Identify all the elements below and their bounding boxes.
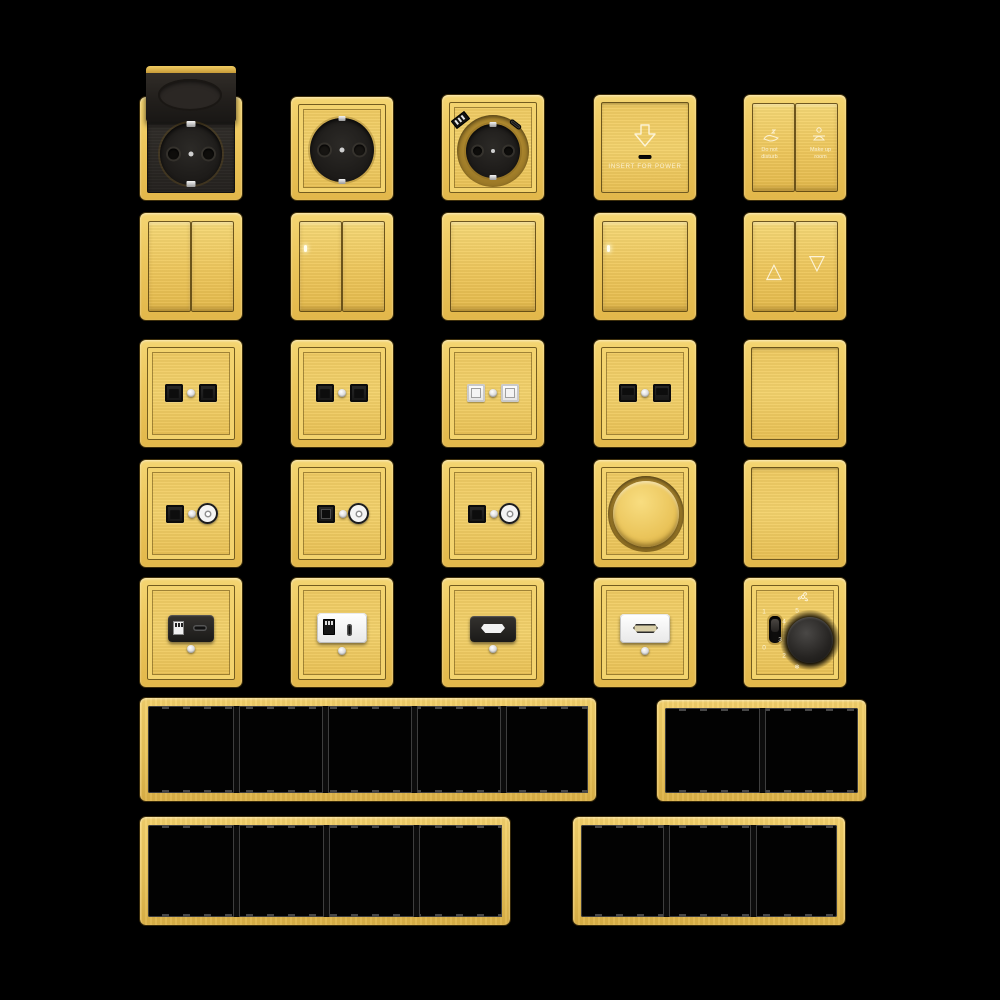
tile-blank-plate[interactable] (744, 340, 846, 447)
frame-openings (581, 825, 837, 917)
keystone-port-right[interactable] (501, 384, 519, 402)
keystone-port-right[interactable] (350, 384, 368, 402)
tile-usb-data-socket[interactable] (594, 340, 696, 447)
center-screw (187, 389, 195, 397)
tile-tv-socket-2[interactable] (291, 460, 393, 567)
tile-socket-flip-cover[interactable] (140, 97, 242, 200)
coax-connector[interactable] (499, 503, 520, 524)
pin-hole-left (473, 147, 482, 156)
frame-divider (759, 708, 766, 793)
dial-number-5: 5 (795, 608, 799, 615)
toggle-label-on: 1 (762, 609, 766, 616)
lid-gold-edge (146, 66, 236, 73)
down-triangle-icon: ▽ (809, 253, 825, 274)
keystone-port-right[interactable] (199, 384, 217, 402)
tile-rotary-dimmer[interactable] (594, 460, 696, 567)
rocker-left[interactable] (299, 221, 342, 312)
product-collage: INSERT FOR POWER Do not disturb Make up … (0, 0, 1000, 1000)
usb-c-port-icon[interactable] (347, 624, 352, 636)
coax-connector[interactable] (197, 503, 218, 524)
mur-label-line2: room (814, 154, 827, 160)
blank-cover (751, 467, 839, 560)
keycard-label: INSERT FOR POWER (594, 164, 696, 170)
center-screw (490, 510, 498, 518)
schuko-socket[interactable] (160, 123, 222, 185)
earth-clip-bottom (490, 175, 497, 180)
tile-switch-1gang[interactable] (442, 213, 544, 320)
tile-hdmi-white[interactable] (594, 578, 696, 687)
up-triangle-icon: △ (766, 261, 782, 282)
pin-hole-left (168, 149, 179, 160)
module-screw (641, 647, 649, 655)
rocker[interactable] (450, 221, 536, 312)
frame-divider (233, 706, 240, 793)
hdmi-port-icon[interactable] (633, 624, 658, 633)
tile-tv-socket-3[interactable] (442, 460, 544, 567)
fan-speed-knob[interactable] (787, 617, 833, 663)
dial-number-4: 4 (782, 619, 786, 626)
tile-switch-1gang-led[interactable] (594, 213, 696, 320)
tile-switch-2gang-led[interactable] (291, 213, 393, 320)
center-screw (339, 510, 347, 518)
earth-clip-bottom (187, 181, 196, 187)
center-screw (340, 148, 345, 153)
blank-cover (751, 347, 839, 440)
usb-c-port-icon[interactable] (193, 625, 207, 631)
data-port[interactable] (166, 505, 184, 523)
make-up-room-icon (811, 127, 827, 142)
optical-port[interactable] (317, 505, 335, 523)
mur-label-line1: Make up (810, 147, 831, 153)
keystone-port-left[interactable] (316, 384, 334, 402)
usb-a-port-icon[interactable] (323, 619, 335, 635)
tile-socket-usb[interactable] (442, 95, 544, 200)
center-screw (188, 510, 196, 518)
pin-hole-right (203, 149, 214, 160)
frame-divider (411, 706, 418, 793)
frame-divider (750, 825, 757, 917)
frame-3gang[interactable] (573, 817, 845, 925)
toggle-paddle (771, 619, 779, 632)
tile-usb-charger-white[interactable] (291, 578, 393, 687)
center-screw (489, 389, 497, 397)
module-screw (187, 645, 195, 653)
usb-port-left[interactable] (619, 384, 637, 402)
frame-divider (323, 825, 330, 917)
hdmi-module (470, 616, 516, 642)
center-screw (338, 389, 346, 397)
pin-hole-left (319, 145, 330, 156)
frame-divider (322, 706, 329, 793)
tile-socket-schuko[interactable] (291, 97, 393, 200)
lid-recess (158, 79, 222, 111)
rocker-right[interactable] (191, 221, 234, 312)
keystone-port-left[interactable] (165, 384, 183, 402)
dnd-label-line2: disturb (761, 154, 778, 160)
led-indicator (304, 245, 307, 252)
rocker-left[interactable] (148, 221, 191, 312)
hdmi-port-icon[interactable] (481, 624, 505, 633)
card-arrow-icon (631, 123, 659, 149)
fan-icon (796, 590, 810, 604)
earth-clip-bottom (339, 179, 346, 184)
module-screw (489, 645, 497, 653)
tile-hdmi-black[interactable] (442, 578, 544, 687)
tile-fan-controller[interactable]: 1 0 5 4 3 2 ❄ (744, 578, 846, 687)
module-screw (338, 647, 346, 655)
keystone-port-left[interactable] (467, 384, 485, 402)
frame-4gang[interactable] (140, 817, 510, 925)
frame-2gang[interactable] (657, 700, 866, 801)
schuko-socket[interactable] (310, 118, 374, 182)
tile-data-socket-white[interactable] (442, 340, 544, 447)
coax-connector[interactable] (348, 503, 369, 524)
tile-tv-socket[interactable] (140, 460, 242, 567)
frame-openings (148, 706, 588, 793)
earth-clip-top (490, 122, 497, 127)
rocker[interactable] (602, 221, 688, 312)
snowflake-icon: ❄ (794, 663, 799, 671)
do-not-disturb-icon (762, 129, 780, 142)
center-screw (189, 152, 194, 157)
led-indicator (607, 245, 610, 252)
tile-data-socket-black-2[interactable] (291, 340, 393, 447)
center-screw (491, 149, 495, 153)
pin-hole-right (354, 145, 365, 156)
tile-data-socket-black[interactable] (140, 340, 242, 447)
tile-curtain-switch[interactable]: △ ▽ (744, 213, 846, 320)
usb-charger-module (168, 615, 214, 642)
frame-5gang[interactable] (140, 698, 596, 801)
earth-clip-top (339, 116, 346, 121)
frame-divider (413, 825, 420, 917)
data-port[interactable] (468, 505, 486, 523)
pin-hole-right (504, 147, 513, 156)
earth-clip-top (187, 121, 196, 127)
schuko-socket[interactable] (466, 124, 520, 178)
usb-a-port-icon[interactable] (173, 621, 184, 635)
dial-number-3: 3 (778, 637, 782, 644)
dial-number-2: 2 (782, 653, 786, 660)
toggle-label-off: 0 (762, 645, 766, 652)
card-slot[interactable] (639, 155, 652, 159)
dimmer-knob[interactable] (613, 481, 679, 547)
tile-blank-plate-2[interactable] (744, 460, 846, 567)
frame-divider (500, 706, 507, 793)
tile-keycard-switch[interactable]: INSERT FOR POWER (594, 95, 696, 200)
center-screw (641, 389, 649, 397)
hdmi-module (620, 614, 670, 643)
frame-divider (233, 825, 240, 917)
tile-dnd-switch[interactable]: Do not disturb Make up room (744, 95, 846, 200)
rocker-right[interactable] (342, 221, 385, 312)
usb-port-right[interactable] (653, 384, 671, 402)
tile-usb-charger-black[interactable] (140, 578, 242, 687)
usb-charger-module (317, 613, 367, 643)
tile-switch-2gang[interactable] (140, 213, 242, 320)
dnd-label-line1: Do not (761, 147, 777, 153)
socket-cover-lid[interactable] (146, 66, 236, 122)
frame-divider (663, 825, 670, 917)
